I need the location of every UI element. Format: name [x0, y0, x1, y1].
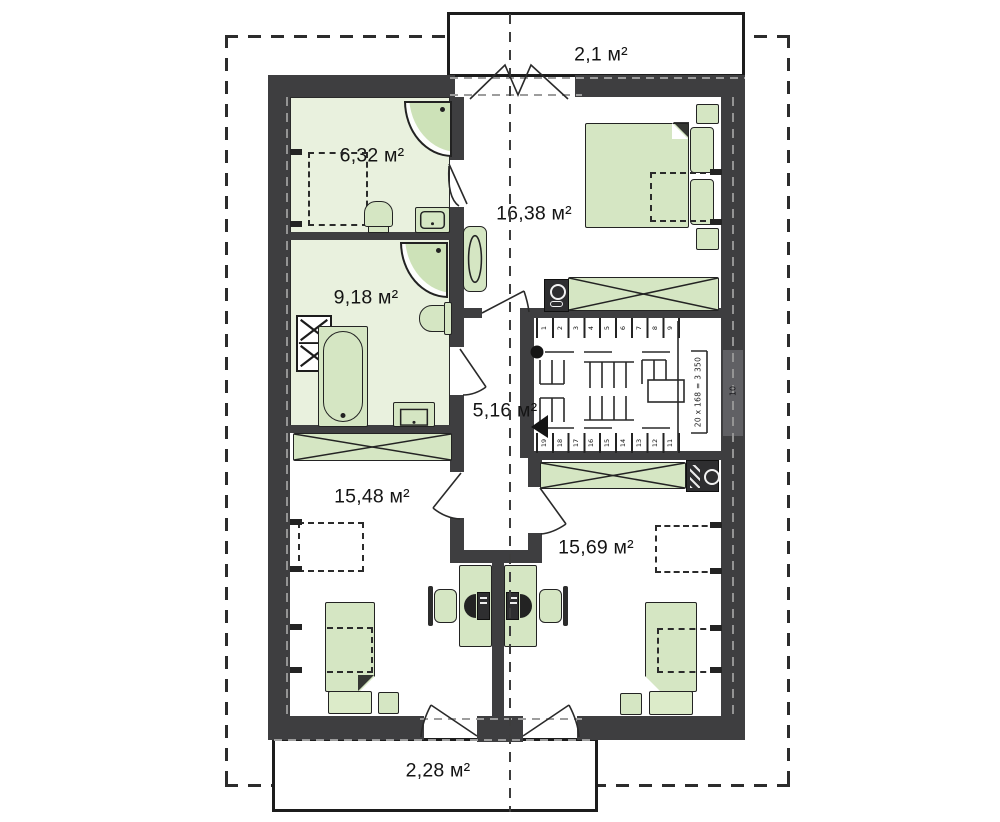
toilet-icon [364, 201, 393, 227]
stair-step-number: 16 [587, 439, 595, 447]
washing-machine-icon [544, 279, 569, 312]
knee-wall-dash-room-br [655, 525, 717, 573]
stair-step-number: 2 [556, 326, 564, 330]
roof-outline-right [787, 35, 790, 787]
bath-cabinet-icon [393, 402, 435, 427]
wall-tick [710, 169, 722, 175]
sink-icon [415, 207, 450, 233]
opening-dash [450, 77, 745, 79]
opening-dash [274, 739, 596, 741]
room-bl-area-label: 15,48 м² [334, 486, 410, 509]
door-balcony-right-icon [523, 705, 579, 737]
chair-back-icon [563, 586, 568, 626]
wall-stairs-west [520, 312, 534, 458]
nightstand-icon [696, 228, 719, 250]
wall-tick [710, 625, 722, 631]
stair-step-number: 17 [572, 439, 580, 447]
hall-vanity-icon [463, 226, 487, 292]
stair-step-number: 13 [635, 439, 643, 447]
stair-step-number: 15 [603, 439, 611, 447]
stair-step-number: 1 [540, 326, 548, 330]
wall-tick [710, 522, 722, 528]
toilet-icon-2 [419, 305, 446, 332]
wall-tick [290, 149, 302, 155]
bed-pillow-icon [649, 691, 693, 715]
stair-step-number: 3 [572, 326, 580, 330]
stair-winder [648, 380, 684, 402]
wardrobe-icon [568, 277, 719, 311]
hall-area-label: 5,16 м² [473, 400, 538, 423]
door-bath-mid-icon [460, 349, 486, 395]
floor-plan-canvas: 2,1 м² 2,28 м² 6,32 м² 9,18 м² [0, 0, 1000, 822]
wall-bedroom-south-stub [452, 308, 482, 318]
stair-comb [642, 360, 666, 384]
bed-pillow-icon [328, 691, 372, 714]
door-room-br-icon [540, 488, 566, 534]
roof-outline-left [225, 35, 228, 787]
wall-tick [290, 667, 302, 673]
wall-tick [290, 566, 302, 572]
wall-bath-divider [290, 232, 450, 240]
wall-tick [290, 221, 302, 227]
pillow-icon [690, 127, 714, 173]
chair-icon [539, 589, 562, 623]
wardrobe-icon [293, 433, 452, 461]
opening-dash [420, 718, 582, 720]
stair-step-number: 4 [587, 326, 595, 330]
center-axis-line [509, 14, 511, 812]
wall-top-left [268, 75, 455, 97]
chair-back-icon [428, 586, 433, 626]
door-balcony-left-icon [421, 705, 477, 737]
boiler-unit-icon [686, 460, 719, 492]
computer-icon [477, 592, 490, 620]
stair-landing-number: 10 [729, 386, 738, 396]
stair-step-number: 6 [619, 326, 627, 330]
bath-mid-area-label: 9,18 м² [334, 287, 399, 310]
door-room-bl-icon [433, 473, 461, 519]
nightstand-icon [378, 692, 399, 714]
computer-icon [506, 592, 519, 620]
stair-step-number: 7 [635, 326, 643, 330]
wall-center-partition [492, 555, 504, 716]
stair-comb [540, 360, 564, 384]
wall-hall-west-b [450, 207, 464, 347]
knee-wall-dash-room-bl [298, 522, 364, 572]
stair-step-number: 8 [651, 326, 659, 330]
stair-step-number: 18 [556, 439, 564, 447]
wall-tick [290, 519, 302, 525]
door-bath-top-icon [449, 164, 467, 206]
wardrobe-icon [540, 462, 686, 489]
wall-tick [710, 568, 722, 574]
knee-wall-dash-bedroom [650, 172, 716, 222]
stair-step-number: 14 [619, 439, 627, 447]
toilet-base-icon [368, 226, 389, 233]
wall-bottom-left [268, 716, 424, 740]
stair-comb [584, 396, 634, 420]
wall-bottom-right [577, 716, 745, 740]
stair-step-number: 5 [603, 326, 611, 330]
knee-wall-dash-bed-br [657, 628, 717, 673]
stair-step-number: 12 [651, 439, 659, 447]
nightstand-icon [696, 104, 719, 124]
wall-tick [710, 667, 722, 673]
wall-tick [710, 219, 722, 225]
stair-step-number: 11 [666, 439, 674, 447]
balcony-top-area-label: 2,1 м² [574, 44, 628, 67]
stair-comb [584, 362, 634, 388]
knee-wall-dash-bed-bl [327, 627, 373, 673]
stair-formula: 20 x 168 = 3 350 [694, 357, 703, 427]
nightstand-icon [620, 693, 642, 715]
stair-step-number: 19 [540, 439, 548, 447]
bathtub-icon [318, 326, 368, 427]
toilet-tank-icon [444, 302, 452, 335]
wall-hall-west-a [450, 97, 464, 160]
knee-wall-dash-bath-top [308, 152, 368, 226]
wall-tick [290, 624, 302, 630]
bedroom-right-area-label: 16,38 м² [496, 203, 572, 226]
stair-step-number: 9 [666, 326, 674, 330]
balcony-bottom-area-label: 2,28 м² [406, 760, 471, 783]
wall-hall-west-c [450, 395, 464, 472]
opening-dash [450, 94, 582, 96]
roof-edge-dash-left [286, 97, 288, 716]
stair-comb [540, 398, 564, 422]
room-br-area-label: 15,69 м² [558, 537, 634, 560]
roof-edge-dash-right [732, 97, 734, 716]
chair-icon [434, 589, 457, 623]
